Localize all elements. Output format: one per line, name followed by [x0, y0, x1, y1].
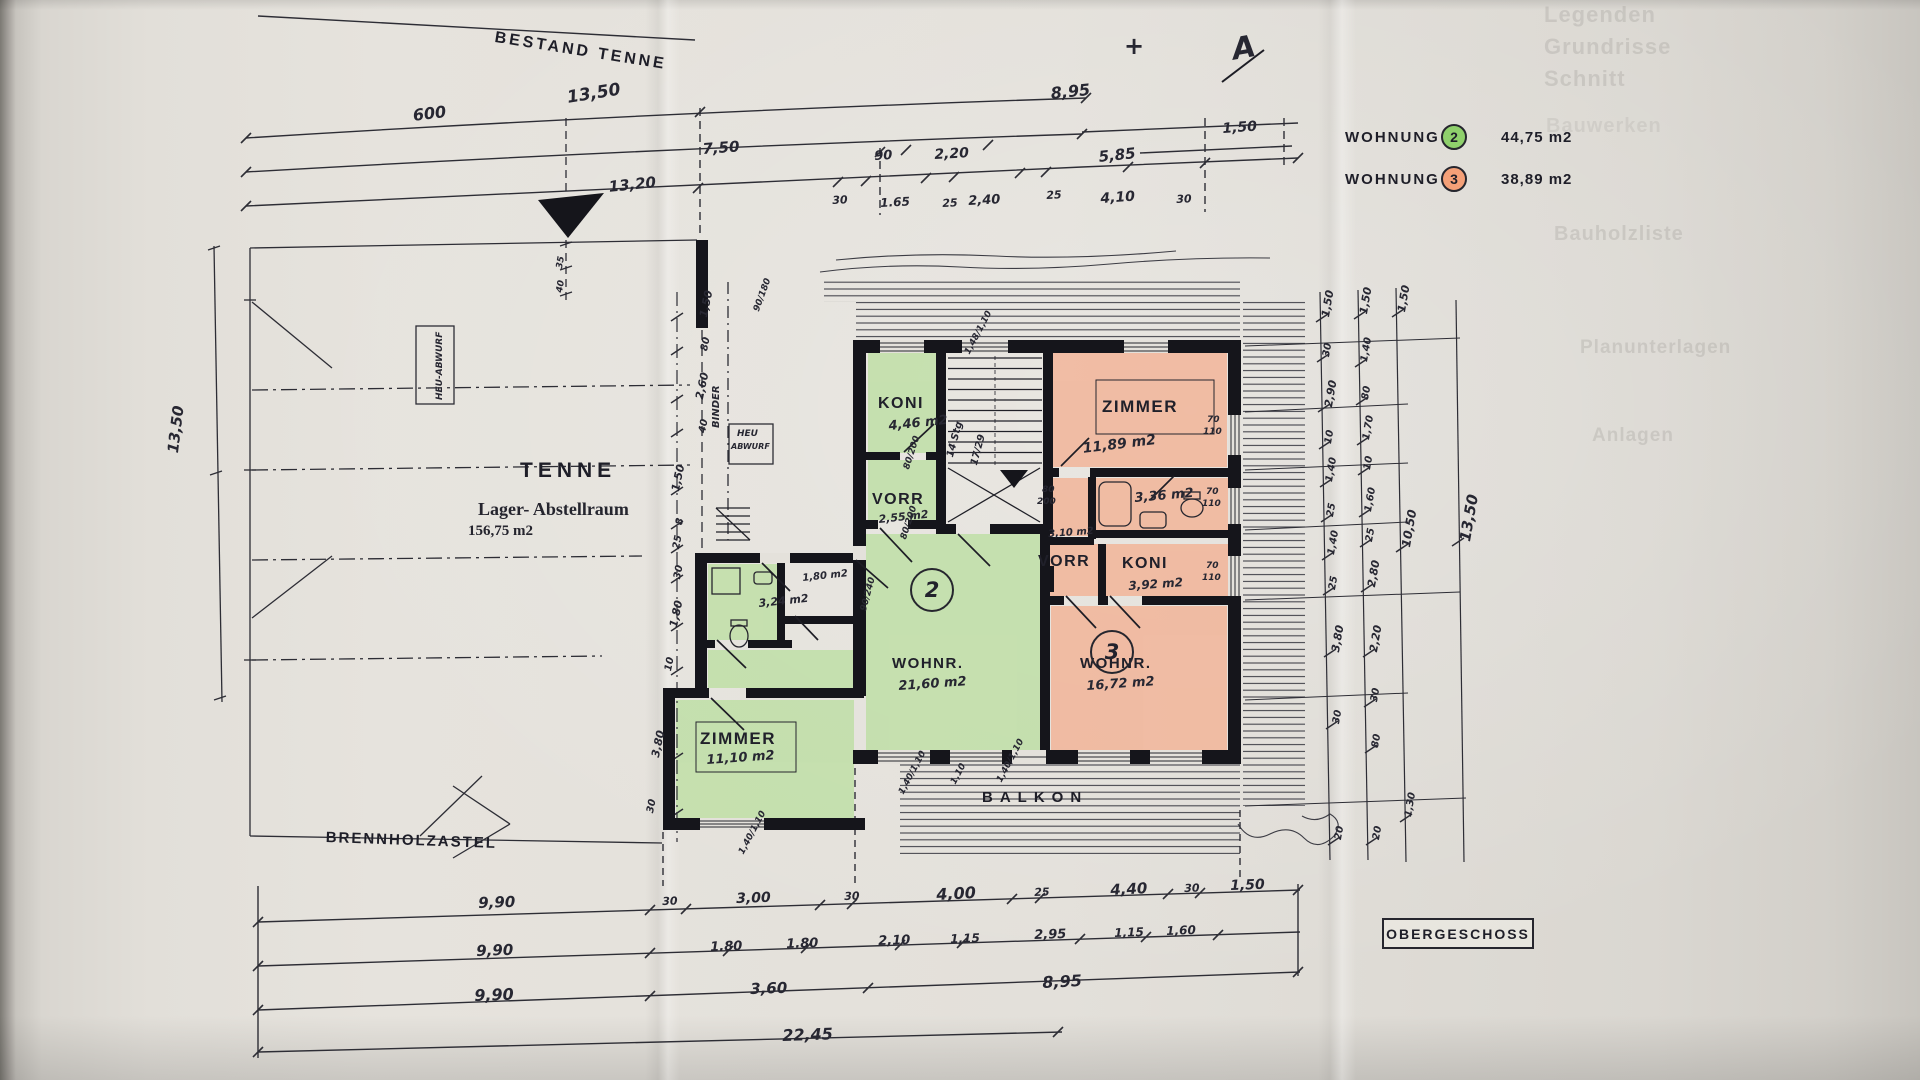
dim-top: 5,85: [1098, 146, 1136, 165]
dim-top: 4,10: [1100, 190, 1135, 206]
dim-bottom: 1,60: [1166, 924, 1196, 937]
watermark: Anlagen: [1592, 426, 1674, 445]
dim-bottom: 30: [1184, 882, 1200, 894]
legend-apartment-label: WOHNUNG: [1345, 129, 1441, 146]
label-heu-abwurf-2: ABWURF: [731, 443, 770, 451]
watermark: Bauholzliste: [1554, 224, 1684, 244]
dim-bottom: 1.80: [710, 940, 743, 954]
label-heu-abwurf: HEU-ABWURF: [436, 332, 445, 400]
room-zimmer2-name: ZIMMER: [700, 730, 776, 747]
watermark: Legenden: [1544, 4, 1656, 26]
dim-bottom: 1,15: [1114, 926, 1144, 939]
dim-bottom: 8,95: [1042, 973, 1082, 991]
room-koni2-name: KONI: [878, 396, 924, 412]
dim-top: 2,40: [968, 193, 1001, 208]
obergeschoss-titleblock: OBERGESCHOSS: [1382, 918, 1534, 949]
dim-bottom: 3,00: [736, 891, 771, 906]
dim-top: 90: [874, 149, 893, 163]
legend-area-value: 44,75 m2: [1501, 129, 1572, 146]
unit-2-badge: 2: [1441, 124, 1467, 150]
dim-bottom: 30: [662, 895, 678, 907]
anno-binder: BINDER: [712, 385, 722, 428]
dim-top: 2,20: [934, 146, 969, 162]
anno-opening: 110: [1202, 500, 1221, 509]
north-marker-a: A: [1230, 32, 1258, 66]
unit-2-plan-marker: 2: [910, 568, 954, 612]
room-vorr3-name: VORR: [1038, 554, 1090, 570]
watermark: Planunterlagen: [1580, 338, 1731, 357]
unit-3-number: 3: [1450, 171, 1458, 187]
watermark: Schnitt: [1544, 68, 1626, 90]
dim-bottom: 2,10: [878, 934, 911, 948]
dim-bottom: 1.80: [786, 937, 819, 951]
arrow-marker: [538, 50, 1264, 238]
dim-top: 8,95: [1050, 82, 1091, 102]
unit-2-plan-number: 2: [925, 578, 940, 602]
anno-opening: 110: [1202, 574, 1221, 583]
unit-3-plan-marker: 3: [1090, 630, 1134, 674]
unit-2-number: 2: [1450, 129, 1458, 145]
room-koni3-name: KONI: [1122, 556, 1168, 572]
anno-opening: 200: [1037, 498, 1056, 507]
legend-apartment-label: WOHNUNG: [1345, 171, 1441, 188]
room-tenne-subtitle: Lager- Abstellraum: [478, 500, 629, 518]
dim-bottom: 25: [1034, 886, 1050, 898]
anno-opening: 110: [1203, 428, 1222, 437]
legend: WOHNUNG 2 44,75 m2 WOHNUNG 3 38,89 m2: [1345, 116, 1615, 200]
room-wohnr2-name: WOHNR.: [892, 656, 964, 671]
dim-bottom: 22,45: [782, 1026, 833, 1044]
room-zimmer3-name: ZIMMER: [1102, 398, 1178, 415]
anno-opening: 70: [1206, 562, 1219, 571]
legend-row-wohnung-3: WOHNUNG 3 38,89 m2: [1345, 158, 1615, 200]
anno-opening: 70: [1207, 416, 1220, 425]
cross-marker: +: [1124, 34, 1144, 58]
dim-top: 25: [1046, 189, 1062, 201]
watermark: Grundrisse: [1544, 36, 1671, 58]
dim-bottom: 30: [844, 890, 860, 902]
room-koni3-area: 3,92 m2: [1128, 576, 1183, 592]
dim-top: 600: [412, 104, 447, 124]
legend-area-value: 38,89 m2: [1501, 171, 1572, 188]
dim-top: 30: [1176, 193, 1192, 205]
dim-bottom: 1,50: [1230, 878, 1265, 893]
dim-bottom: 2,95: [1034, 928, 1067, 942]
dim-bottom: 3,60: [750, 981, 788, 997]
room-tenne-name: TENNE: [520, 460, 616, 481]
label-heu-abwurf-2: HEU: [737, 430, 758, 439]
unit-3-badge: 3: [1441, 166, 1467, 192]
floorplan-scan: BESTAND TENNETENNELager- Abstellraum156,…: [0, 0, 1920, 1080]
dim-bottom: 4,40: [1110, 881, 1148, 898]
dim-bottom: 1,15: [950, 932, 980, 945]
legend-row-wohnung-2: WOHNUNG 2 44,75 m2: [1345, 116, 1615, 158]
drawing-linework: [0, 0, 1920, 1080]
unit-3-plan-number: 3: [1105, 640, 1120, 664]
dim-top: 1,50: [1222, 120, 1257, 136]
dim-bottom: 9,90: [476, 943, 514, 959]
room-vorr2-name: VORR: [872, 492, 924, 508]
dim-bottom: 4,00: [936, 885, 976, 903]
room-tenne-area: 156,75 m2: [468, 524, 533, 539]
label-balkon: BALKON: [982, 790, 1088, 805]
dim-top: 30: [832, 194, 848, 206]
anno-opening: 70: [1206, 488, 1219, 497]
dim-bottom: 9,90: [478, 895, 516, 911]
dim-top: 1.65: [880, 195, 910, 209]
dim-top: 25: [942, 197, 958, 209]
anno-opening: 80: [1042, 486, 1055, 495]
dim-top: 7,50: [702, 139, 740, 157]
titleblock-label: OBERGESCHOSS: [1386, 926, 1530, 942]
dim-bottom: 9,90: [474, 987, 514, 1004]
